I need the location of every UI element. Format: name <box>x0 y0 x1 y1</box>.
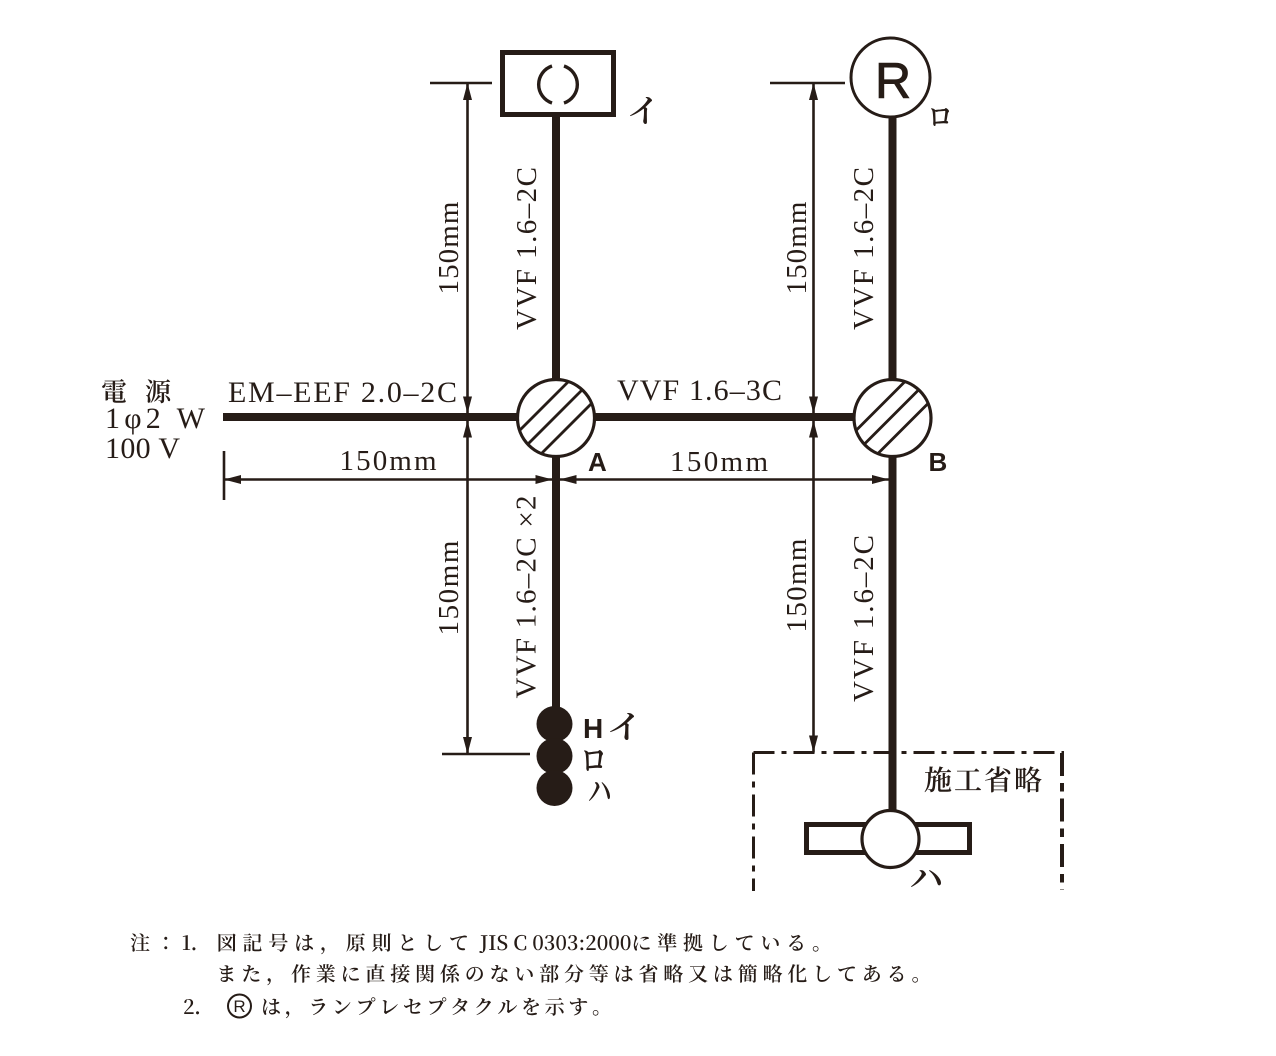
svg-text:150mm: 150mm <box>433 201 465 294</box>
svg-text:A: A <box>588 447 607 477</box>
svg-text:VVF 1.6–2C: VVF 1.6–2C <box>848 167 880 330</box>
svg-text:EM–EEF 2.0–2C: EM–EEF 2.0–2C <box>228 376 457 409</box>
svg-text:R: R <box>233 997 245 1016</box>
svg-text:B: B <box>929 447 948 477</box>
svg-text:VVF 1.6–2C: VVF 1.6–2C <box>511 167 543 330</box>
svg-text:VVF 1.6–2C ×2: VVF 1.6–2C ×2 <box>511 496 543 699</box>
svg-text:H: H <box>583 713 603 744</box>
svg-text:VVF 1.6–3C: VVF 1.6–3C <box>617 374 782 407</box>
svg-text:150mm: 150mm <box>781 538 813 632</box>
svg-text:100 V: 100 V <box>105 432 180 465</box>
svg-text:VVF 1.6–2C: VVF 1.6–2C <box>848 535 880 702</box>
svg-text:R: R <box>875 53 911 109</box>
svg-text:150mm: 150mm <box>433 540 465 635</box>
svg-text:150mm: 150mm <box>781 201 813 294</box>
